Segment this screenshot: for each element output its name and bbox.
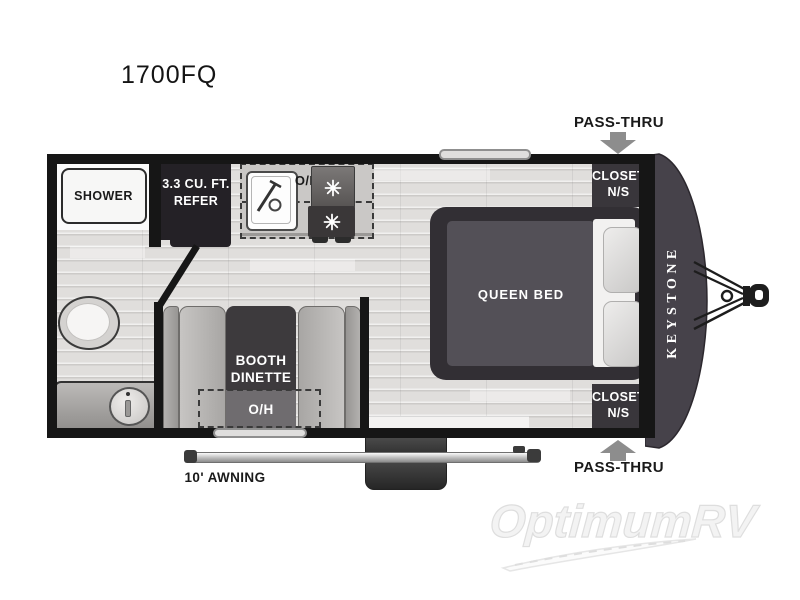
- arrow-down-icon: [598, 130, 638, 156]
- wall-rear: [47, 154, 57, 438]
- rv-floorplan-image: 1700FQ PASS-THRU KEYSTONE SHOWER: [0, 0, 800, 600]
- watermark-road-graphic: [500, 534, 700, 574]
- floorplan-model-title: 1700FQ: [121, 61, 217, 90]
- closet-label-line2: N/S: [592, 406, 645, 421]
- wall-top: [47, 154, 645, 164]
- dinette-bench-back-right: [345, 306, 361, 431]
- stove-oven: [308, 206, 355, 237]
- closet-front-top: CLOSET N/S: [592, 163, 645, 207]
- kitchen-faucet-icon: [250, 175, 294, 225]
- queen-bed-label: QUEEN BED: [447, 287, 595, 303]
- floor-plank-highlight: [470, 389, 570, 401]
- wall-bottom: [47, 428, 645, 438]
- dinette-table: BOOTH DINETTE: [226, 306, 296, 390]
- toilet-icon: [58, 296, 120, 350]
- closet-front-bottom: CLOSET N/S: [592, 384, 645, 428]
- awning-label: 10' AWNING: [150, 470, 300, 485]
- bathroom-vanity: [54, 381, 161, 433]
- refrigerator-label-line2: REFER: [161, 194, 231, 209]
- pass-thru-bottom-label: PASS-THRU: [549, 459, 689, 476]
- toilet-bowl: [66, 303, 110, 341]
- wall-front: [639, 154, 655, 438]
- dinette-label-line2: DINETTE: [226, 370, 296, 386]
- dinette-wall: [360, 297, 369, 429]
- dinette-overhead-outline: [198, 389, 321, 428]
- dinette-bench-back-left: [163, 306, 179, 431]
- wall-shower-divider: [149, 154, 161, 247]
- window-top: [439, 149, 531, 160]
- shower-label: SHOWER: [56, 189, 151, 203]
- burner-icon: [324, 179, 342, 197]
- trailer-hitch: [688, 250, 788, 345]
- sink-faucet-icon: [125, 400, 131, 417]
- pillow: [603, 301, 643, 367]
- pillow: [603, 227, 643, 293]
- awning-bracket: [513, 446, 525, 453]
- window-bottom: [213, 428, 307, 438]
- floor-plank-highlight: [250, 259, 355, 271]
- refrigerator: 3.3 CU. FT. REFER: [161, 163, 231, 240]
- shower-stall: SHOWER: [56, 163, 151, 230]
- pass-thru-top-label: PASS-THRU: [549, 114, 689, 131]
- awning-end-cap: [527, 449, 541, 462]
- stove-top: [311, 166, 355, 208]
- burner-icon: [323, 213, 341, 231]
- stove-foot: [335, 237, 351, 243]
- closet-label-line2: N/S: [592, 185, 645, 200]
- floor-plank-highlight: [360, 168, 490, 180]
- bathroom-wall: [154, 302, 163, 429]
- sink-drain: [126, 392, 130, 396]
- floor-plank-highlight: [70, 246, 145, 258]
- queen-bed-platform: QUEEN BED: [430, 207, 648, 380]
- dinette-label-line1: BOOTH: [226, 353, 296, 369]
- closet-label-line1: CLOSET: [592, 169, 645, 184]
- brand-label: KEYSTONE: [665, 212, 681, 392]
- awning-end-cap: [184, 450, 197, 463]
- stove-foot: [312, 237, 328, 243]
- awning-rod: [187, 452, 541, 463]
- refrigerator-label-line1: 3.3 CU. FT.: [157, 177, 235, 192]
- closet-label-line1: CLOSET: [592, 390, 645, 405]
